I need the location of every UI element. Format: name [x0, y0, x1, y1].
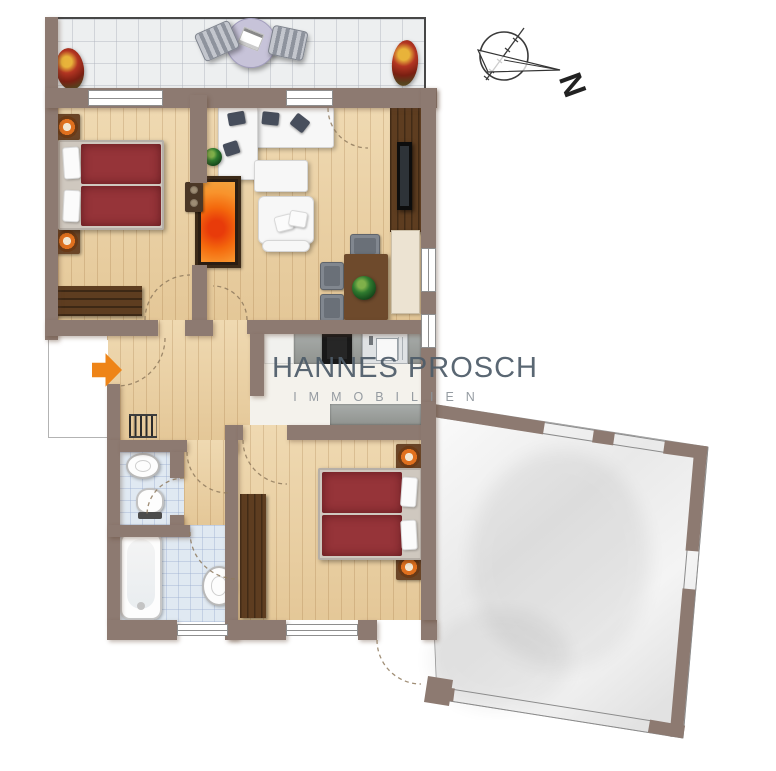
window-icon — [286, 90, 333, 106]
wall — [247, 320, 421, 334]
double-bed — [58, 140, 164, 230]
terrace-wall-elbow — [424, 676, 453, 706]
wall — [170, 515, 184, 525]
toilet-tank — [138, 512, 162, 519]
wall — [250, 334, 264, 396]
dresser-icon — [54, 286, 142, 316]
wall — [120, 440, 187, 452]
wall — [107, 620, 177, 640]
wall — [190, 95, 207, 183]
stairwell-area — [48, 340, 108, 438]
sofa-cushion-icon — [261, 111, 279, 126]
wall — [107, 384, 120, 440]
pillow-icon — [62, 190, 81, 223]
armchair — [258, 196, 314, 244]
washbasin-icon — [126, 453, 160, 479]
terrace-interior — [425, 403, 708, 738]
coffee-table — [254, 160, 308, 192]
toilet-icon — [136, 488, 164, 514]
wall — [170, 452, 184, 478]
window-icon — [421, 314, 436, 348]
stove-control-box — [185, 182, 203, 212]
wall — [421, 402, 436, 620]
wall — [421, 620, 437, 640]
tv-icon — [397, 142, 412, 210]
compass-north-label: N — [552, 68, 594, 102]
wall — [228, 620, 286, 640]
watermark-title: HANNES PROSCH — [272, 352, 502, 385]
wall — [45, 17, 58, 340]
watermark-subtitle: IMMOBILIEN — [272, 390, 502, 404]
wall — [358, 620, 377, 640]
double-bed — [318, 468, 422, 560]
wall — [287, 425, 421, 440]
table-plant-icon — [352, 276, 376, 300]
window-icon — [286, 624, 358, 636]
dining-chair-icon — [320, 262, 344, 290]
wall — [192, 265, 207, 322]
radiator-icon — [129, 414, 157, 438]
terrace-walls — [424, 409, 707, 737]
wall — [108, 525, 190, 537]
wall — [238, 425, 243, 440]
window-icon — [88, 90, 163, 106]
floor-plan: N HANNES PROSCH IMMOBILIEN — [0, 0, 776, 771]
dining-chair-icon — [320, 294, 344, 322]
wardrobe — [240, 494, 266, 618]
window-icon — [421, 248, 436, 292]
window-icon — [177, 624, 228, 636]
sideboard — [391, 230, 420, 314]
watermark: HANNES PROSCH IMMOBILIEN — [272, 352, 502, 404]
kitchen-island-counter — [330, 404, 421, 425]
pillow-icon — [62, 146, 81, 179]
fire-glow — [201, 182, 235, 262]
wall — [185, 320, 213, 336]
compass-rose-icon: N — [478, 28, 594, 102]
armchair-footrest — [262, 240, 310, 252]
nightstand-lamp-icon — [396, 444, 422, 470]
wall — [45, 320, 158, 336]
bathtub-icon — [120, 532, 162, 620]
wall — [225, 425, 238, 640]
